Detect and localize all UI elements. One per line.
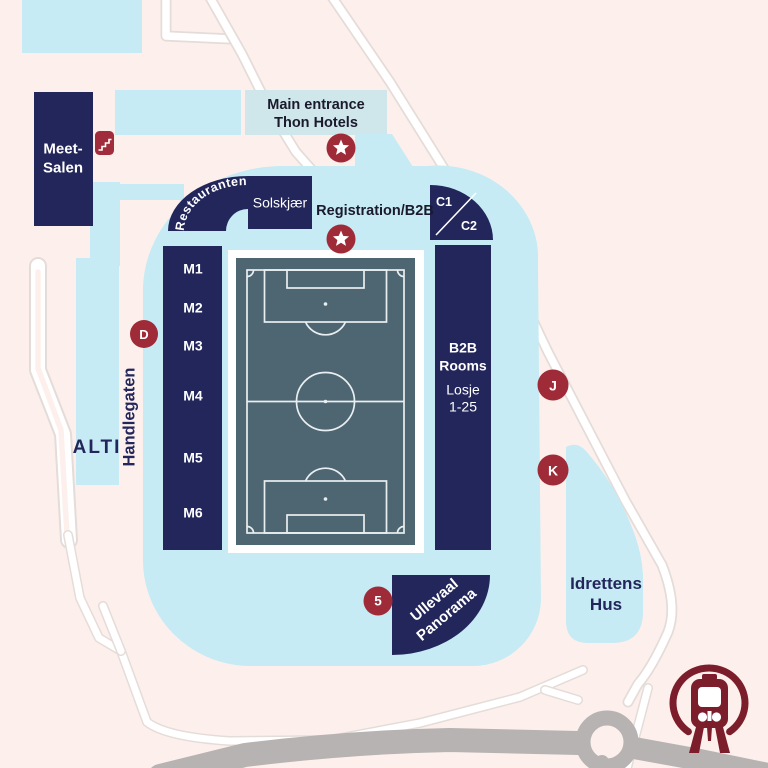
c1-label: C1	[436, 195, 452, 211]
marker-5: 5	[364, 587, 393, 616]
marker-d: D	[130, 320, 158, 348]
b2b-rooms-label-1: B2B	[449, 339, 477, 357]
room-m5-label: M5	[183, 449, 202, 467]
pitch	[228, 250, 424, 553]
room-m4-label: M4	[183, 387, 202, 405]
venue-map: Restauranten	[0, 0, 768, 768]
handlegaten-label: Handlegaten	[120, 367, 141, 466]
star-marker-registration	[327, 225, 356, 254]
entrance-connector	[355, 134, 415, 170]
north-building	[22, 0, 142, 53]
entrance-strip-west	[115, 90, 241, 135]
stairs-icon	[95, 131, 114, 155]
map-base: Restauranten	[0, 0, 768, 768]
alti-label: ALTI	[73, 436, 122, 460]
b2b-losje-label-2: 1-25	[449, 398, 477, 416]
idrettens-hus-label: Idrettens Hus	[570, 573, 642, 616]
roundabout	[583, 718, 631, 766]
solskjaer-label: Solskjær	[253, 194, 307, 212]
registration-label: Registration/B2B	[316, 202, 434, 220]
metro-train-icon	[673, 668, 745, 753]
meet-salen-label: Meet- Salen	[43, 140, 83, 178]
marker-k: K	[538, 455, 569, 486]
room-m2-label: M2	[183, 299, 202, 317]
c2-label: C2	[461, 219, 477, 235]
room-m1-label: M1	[183, 260, 202, 278]
b2b-rooms-label-2: Rooms	[439, 357, 486, 375]
main-entrance-label: Main entrance Thon Hotels	[267, 96, 365, 132]
star-marker-main-entrance	[327, 134, 356, 163]
room-m6-label: M6	[183, 504, 202, 522]
west-corridor-arm	[90, 184, 184, 200]
b2b-losje-label-1: Losje	[446, 381, 479, 399]
marker-j: J	[538, 370, 569, 401]
room-m3-label: M3	[183, 337, 202, 355]
